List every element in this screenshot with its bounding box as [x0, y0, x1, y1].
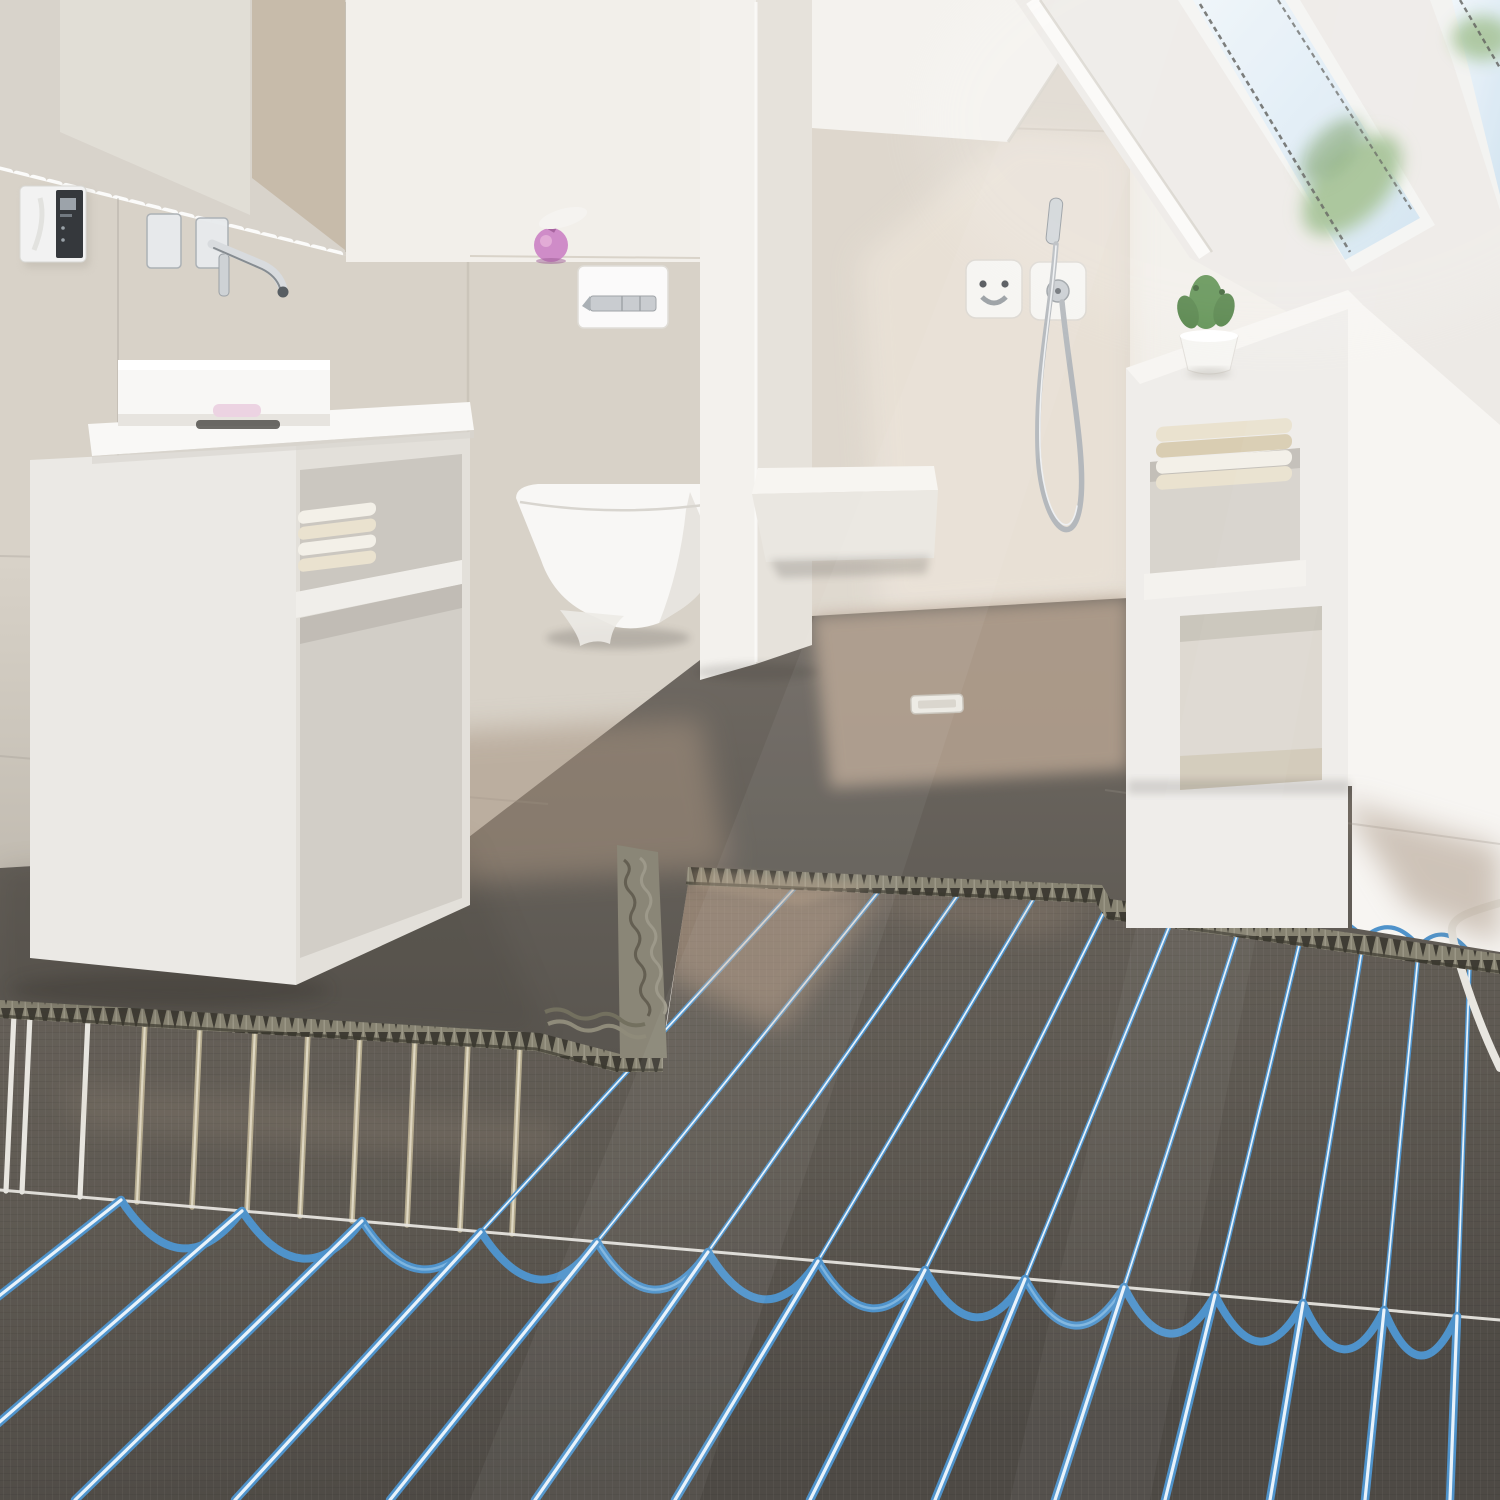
- thermostat: [20, 186, 90, 268]
- vanity-niche-bottom: [300, 584, 462, 958]
- faucet-handle: [219, 254, 229, 296]
- spout-nozzle: [278, 287, 289, 298]
- faucet-plate: [147, 214, 181, 268]
- partition: [694, 0, 818, 681]
- counter-tray: [196, 420, 280, 429]
- vanity-front: [30, 446, 296, 985]
- soap-dish: [213, 404, 261, 417]
- scene-canvas: [0, 0, 1500, 1500]
- flush-plate: [578, 266, 668, 328]
- partition-front: [700, 0, 756, 680]
- bathroom-render: [0, 0, 1500, 1500]
- flush-buttons: [590, 296, 656, 311]
